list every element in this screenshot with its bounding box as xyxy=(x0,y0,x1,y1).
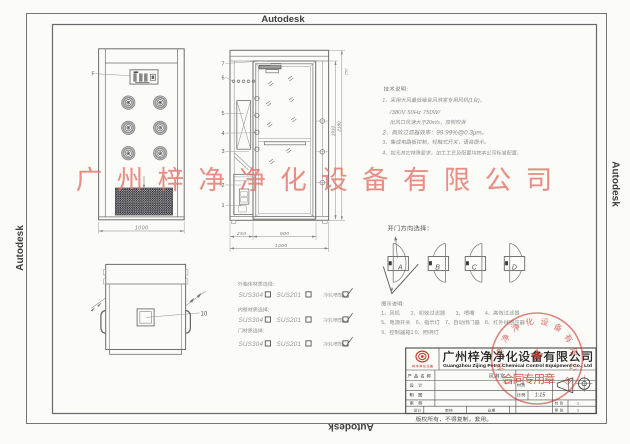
svg-text:SUS304: SUS304 xyxy=(239,341,264,348)
svg-text:Autodesk: Autodesk xyxy=(261,14,305,25)
svg-text:1: 1 xyxy=(577,409,579,413)
svg-text:F: F xyxy=(92,72,95,78)
svg-text:6: 6 xyxy=(416,320,419,326)
svg-text:SUS201: SUS201 xyxy=(277,292,302,299)
svg-text:4: 4 xyxy=(221,131,224,137)
svg-text:6: 6 xyxy=(221,75,224,81)
svg-text::: : xyxy=(273,282,274,288)
svg-text:SUS201: SUS201 xyxy=(277,341,302,348)
svg-text:SUS201: SUS201 xyxy=(277,317,302,324)
svg-text:2: 2 xyxy=(411,311,414,317)
svg-text:4: 4 xyxy=(382,151,385,157)
svg-text:1: 1 xyxy=(382,98,385,104)
svg-text:1000: 1000 xyxy=(275,243,287,249)
svg-text:2: 2 xyxy=(221,183,224,189)
svg-text:10: 10 xyxy=(201,311,208,317)
svg-text:7: 7 xyxy=(445,320,448,326)
svg-text:10: 10 xyxy=(411,330,418,336)
svg-text:3: 3 xyxy=(382,140,385,146)
svg-text:8: 8 xyxy=(485,320,488,326)
svg-text:1000: 1000 xyxy=(135,225,148,231)
svg-text:Autodesk: Autodesk xyxy=(328,421,374,432)
svg-text:A: A xyxy=(397,264,403,271)
svg-text:(1: (1 xyxy=(468,98,473,104)
svg-text:Autodesk: Autodesk xyxy=(15,225,26,271)
svg-text:1:15: 1:15 xyxy=(535,393,546,399)
svg-text:/380V 50Hz 750W/: /380V 50Hz 750W/ xyxy=(389,110,442,116)
svg-text:1: 1 xyxy=(381,311,384,317)
svg-text:20m/s: 20m/s xyxy=(425,120,440,126)
svg-text:800: 800 xyxy=(280,231,289,237)
svg-text:Autodesk: Autodesk xyxy=(610,161,621,207)
svg-text:D: D xyxy=(512,264,517,271)
svg-text:SUS304: SUS304 xyxy=(239,292,264,299)
svg-text:3: 3 xyxy=(456,311,459,317)
svg-text::: : xyxy=(263,328,264,334)
svg-text::: : xyxy=(406,87,408,93)
svg-text:3: 3 xyxy=(221,149,224,155)
svg-text:B: B xyxy=(435,264,440,271)
svg-text::: : xyxy=(268,307,269,313)
svg-text:2: 2 xyxy=(381,129,386,136)
svg-text:250: 250 xyxy=(236,231,246,237)
svg-text:99.99%@0.3μm: 99.99%@0.3μm xyxy=(436,129,481,136)
svg-text:150: 150 xyxy=(344,68,349,75)
svg-text:7: 7 xyxy=(221,61,224,67)
svg-text:1910: 1910 xyxy=(330,125,335,136)
svg-text::: : xyxy=(403,302,404,308)
svg-text:SUS304: SUS304 xyxy=(239,317,264,324)
svg-text:5: 5 xyxy=(381,320,384,326)
svg-text:Guangzhou Zijing Petro Chemica: Guangzhou Zijing Petro Chemical Control … xyxy=(443,363,592,368)
svg-text:4: 4 xyxy=(485,311,488,317)
svg-text:2180: 2180 xyxy=(337,121,342,133)
svg-text:1: 1 xyxy=(221,203,224,209)
svg-text:5: 5 xyxy=(221,111,224,117)
svg-text:9: 9 xyxy=(381,330,384,336)
svg-text:1: 1 xyxy=(577,402,579,406)
svg-text:): ) xyxy=(477,98,480,104)
